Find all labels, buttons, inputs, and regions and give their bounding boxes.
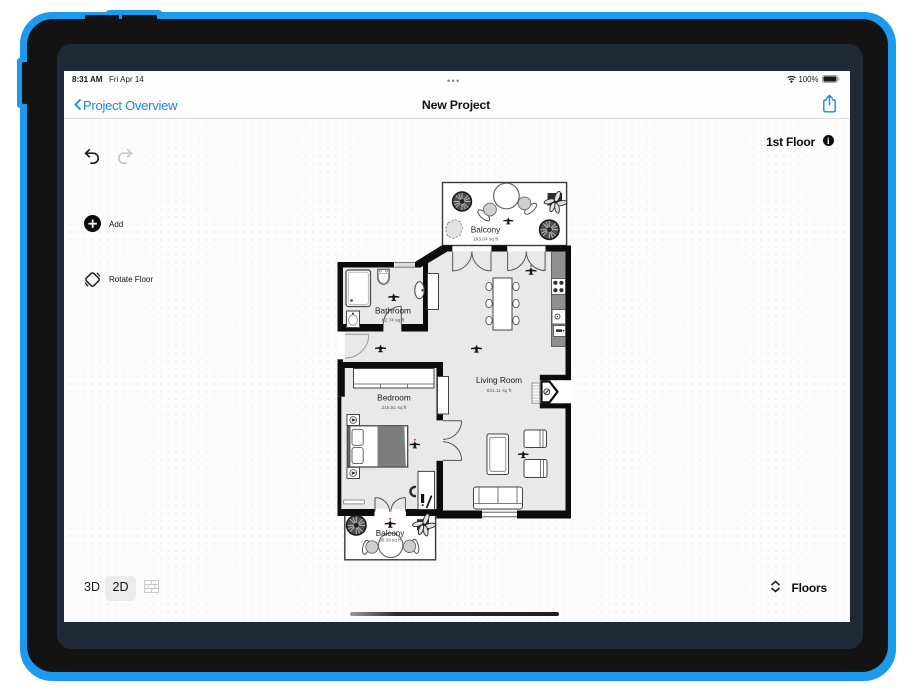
svg-text:631.11 sq ft: 631.11 sq ft — [487, 388, 512, 394]
svg-text:193.04 sq ft: 193.04 sq ft — [473, 236, 499, 242]
svg-text:99.39 sq ft: 99.39 sq ft — [379, 538, 401, 543]
svg-text:Bedroom: Bedroom — [377, 392, 411, 402]
svg-text:Bathroom: Bathroom — [375, 305, 411, 315]
svg-text:Living Room: Living Room — [476, 375, 522, 385]
svg-text:Balcony: Balcony — [471, 225, 501, 235]
svg-text:82.74 sq ft: 82.74 sq ft — [382, 317, 405, 323]
svg-text:215.51 sq ft: 215.51 sq ft — [381, 405, 407, 411]
